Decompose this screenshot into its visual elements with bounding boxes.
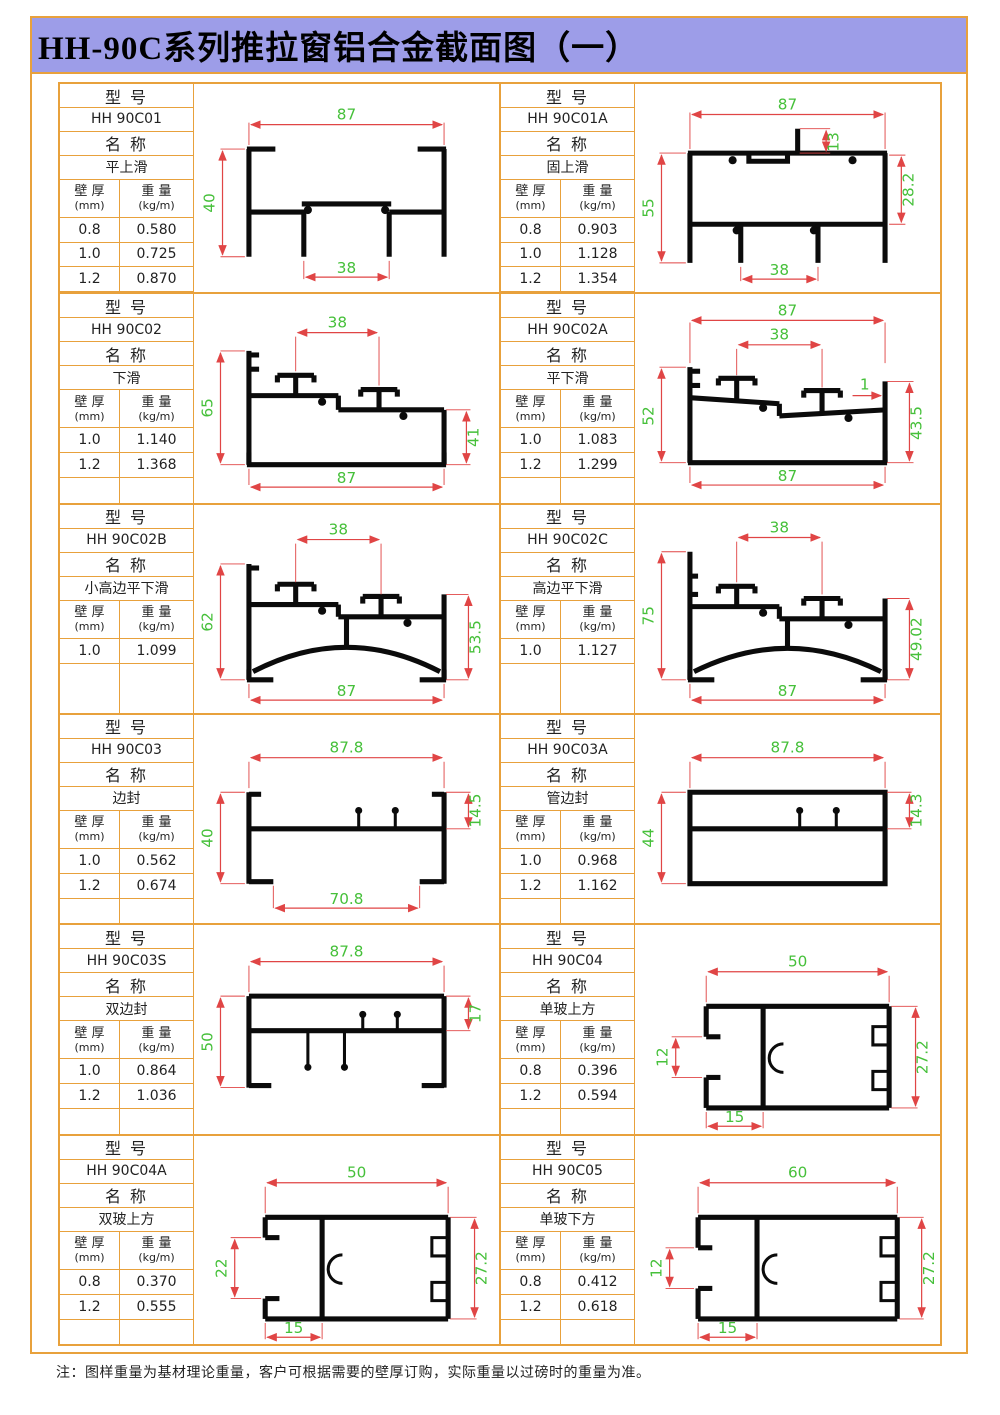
- profile-card-hh90c02b: 型 号 HH 90C02B 名 称 小高边平下滑 壁 厚(mm) 重 量(kg/…: [59, 504, 500, 714]
- table-row: 0.80.412: [501, 1270, 634, 1295]
- svg-text:40: 40: [198, 828, 216, 847]
- profile-card-hh90c03a: 型 号 HH 90C03A 名 称 管边封 壁 厚(mm) 重 量(kg/m) …: [500, 714, 941, 924]
- table-row: 0.80.370: [60, 1270, 193, 1295]
- spec-header: 壁 厚(mm) 重 量(kg/m): [60, 180, 193, 218]
- table-filler: [60, 1320, 193, 1344]
- table-row: 1.01.099: [60, 639, 193, 664]
- svg-text:38: 38: [770, 261, 789, 279]
- table-filler: [60, 478, 193, 502]
- spec-table: 型 号 HH 90C03A 名 称 管边封 壁 厚(mm) 重 量(kg/m) …: [501, 715, 635, 923]
- svg-text:12: 12: [654, 1048, 672, 1067]
- table-row: 1.20.674: [60, 874, 193, 899]
- svg-text:53.5: 53.5: [467, 620, 485, 654]
- table-filler: [501, 899, 634, 923]
- table-filler: [60, 664, 193, 713]
- svg-text:38: 38: [328, 314, 347, 332]
- table-row: 1.20.618: [501, 1295, 634, 1320]
- svg-text:1: 1: [860, 376, 870, 394]
- svg-text:27.2: 27.2: [920, 1251, 938, 1285]
- table-row: 1.21.368: [60, 453, 193, 478]
- section-drawing: 87.8 40 14.5 70.8: [194, 715, 499, 923]
- spec-table: 型 号 HH 90C01A 名 称 固上滑 壁 厚(mm) 重 量(kg/m) …: [501, 84, 635, 292]
- profile-grid: 型 号 HH 90C01 名 称 平上滑 壁 厚(mm) 重 量(kg/m) 0…: [58, 82, 942, 1346]
- dim-bottom-label: 38: [337, 259, 356, 277]
- table-row: 1.01.128: [501, 243, 634, 268]
- svg-text:43.5: 43.5: [908, 406, 926, 440]
- svg-text:17: 17: [467, 1004, 485, 1023]
- svg-text:87: 87: [778, 682, 797, 700]
- table-row: 1.01.140: [60, 428, 193, 453]
- svg-text:55: 55: [639, 198, 657, 217]
- svg-text:14.5: 14.5: [467, 794, 485, 828]
- table-row: 1.20.870: [60, 267, 193, 292]
- table-row: 0.80.580: [60, 218, 193, 243]
- table-row: 1.21.354: [501, 267, 634, 292]
- catalog-page: HH-90C系列推拉窗铝合金截面图（一） 型 号 HH 90C01 名 称 平上…: [0, 0, 1000, 1415]
- table-filler: [501, 1320, 634, 1344]
- section-drawing: 38 65 41 87: [194, 294, 499, 502]
- table-row: 1.21.162: [501, 874, 634, 899]
- spec-table: 型 号 HH 90C02A 名 称 平下滑 壁 厚(mm) 重 量(kg/m) …: [501, 294, 635, 502]
- svg-text:38: 38: [770, 518, 789, 536]
- table-row: 1.01.127: [501, 639, 634, 664]
- section-drawing: 50 12 27.2 15: [635, 925, 940, 1133]
- spec-table: 型 号 HH 90C03S 名 称 双边封 壁 厚(mm) 重 量(kg/m) …: [60, 925, 194, 1133]
- section-drawing: 87.8 50 17: [194, 925, 499, 1133]
- svg-text:15: 15: [725, 1108, 744, 1126]
- spec-table: 型 号 HH 90C03 名 称 边封 壁 厚(mm) 重 量(kg/m) 1.…: [60, 715, 194, 923]
- svg-text:75: 75: [639, 606, 657, 625]
- svg-text:65: 65: [198, 398, 216, 417]
- profile-card-hh90c04a: 型 号 HH 90C04A 名 称 双玻上方 壁 厚(mm) 重 量(kg/m)…: [59, 1135, 500, 1345]
- svg-text:13: 13: [824, 132, 842, 151]
- svg-text:87: 87: [778, 95, 797, 113]
- svg-text:87: 87: [337, 469, 356, 487]
- svg-text:12: 12: [647, 1258, 665, 1277]
- profile-card-hh90c05: 型 号 HH 90C05 名 称 单玻下方 壁 厚(mm) 重 量(kg/m) …: [500, 1135, 941, 1345]
- spec-table: 型 号 HH 90C02B 名 称 小高边平下滑 壁 厚(mm) 重 量(kg/…: [60, 505, 194, 713]
- svg-text:41: 41: [465, 428, 483, 447]
- svg-text:87.8: 87.8: [330, 739, 364, 757]
- profile-card-hh90c02a: 型 号 HH 90C02A 名 称 平下滑 壁 厚(mm) 重 量(kg/m) …: [500, 293, 941, 503]
- table-filler: [60, 899, 193, 923]
- svg-text:87: 87: [337, 682, 356, 700]
- name-value: 平上滑: [60, 156, 193, 180]
- name-label: 名 称: [60, 132, 193, 156]
- spec-table: 型 号 HH 90C04A 名 称 双玻上方 壁 厚(mm) 重 量(kg/m)…: [60, 1136, 194, 1344]
- table-row: 0.80.396: [501, 1059, 634, 1084]
- spec-table: 型 号 HH 90C05 名 称 单玻下方 壁 厚(mm) 重 量(kg/m) …: [501, 1136, 635, 1344]
- svg-text:50: 50: [788, 953, 807, 971]
- svg-text:50: 50: [347, 1163, 366, 1181]
- svg-text:60: 60: [788, 1163, 807, 1181]
- page-title: HH-90C系列推拉窗铝合金截面图（一）: [32, 21, 639, 69]
- svg-text:38: 38: [770, 326, 789, 344]
- table-filler: [60, 1109, 193, 1133]
- table-row: 1.20.555: [60, 1295, 193, 1320]
- section-drawing: 87.8 44 14.3: [635, 715, 940, 923]
- spec-table: 型 号 HH 90C02C 名 称 高边平下滑 壁 厚(mm) 重 量(kg/m…: [501, 505, 635, 713]
- footnote: 注：图样重量为基材理论重量，客户可根据需要的壁厚订购，实际重量以过磅时的重量为准…: [56, 1362, 651, 1382]
- title-bar: HH-90C系列推拉窗铝合金截面图（一）: [32, 18, 966, 74]
- svg-text:87.8: 87.8: [330, 943, 364, 961]
- profile-card-hh90c04: 型 号 HH 90C04 名 称 单玻上方 壁 厚(mm) 重 量(kg/m) …: [500, 924, 941, 1134]
- svg-text:87: 87: [778, 302, 797, 320]
- svg-text:52: 52: [639, 407, 657, 426]
- svg-text:14.3: 14.3: [908, 794, 926, 828]
- svg-text:87: 87: [778, 467, 797, 485]
- svg-text:70.8: 70.8: [330, 890, 364, 908]
- section-drawing: 38 75 49.02 87: [635, 505, 940, 713]
- section-drawing: 60 12 27.2 15: [635, 1136, 940, 1344]
- table-row: 1.00.864: [60, 1059, 193, 1084]
- section-drawing: 87 40 38: [194, 84, 499, 292]
- table-row: 1.00.562: [60, 849, 193, 874]
- model-label: 型 号: [60, 84, 193, 108]
- profile-card-hh90c02: 型 号 HH 90C02 名 称 下滑 壁 厚(mm) 重 量(kg/m) 1.…: [59, 293, 500, 503]
- svg-text:62: 62: [198, 612, 216, 631]
- table-row: 1.21.036: [60, 1084, 193, 1109]
- profile-card-hh90c01a: 型 号 HH 90C01A 名 称 固上滑 壁 厚(mm) 重 量(kg/m) …: [500, 83, 941, 293]
- svg-text:22: 22: [213, 1258, 231, 1277]
- svg-text:27.2: 27.2: [914, 1040, 932, 1074]
- spec-table: 型 号 HH 90C04 名 称 单玻上方 壁 厚(mm) 重 量(kg/m) …: [501, 925, 635, 1133]
- svg-text:38: 38: [329, 520, 348, 538]
- model-value: HH 90C01: [60, 108, 193, 132]
- section-drawing: 87 38 52 1 43.5 87: [635, 294, 940, 502]
- section-drawing: 38 62 53.5 87: [194, 505, 499, 713]
- table-row: 1.20.594: [501, 1084, 634, 1109]
- profile-card-hh90c03s: 型 号 HH 90C03S 名 称 双边封 壁 厚(mm) 重 量(kg/m) …: [59, 924, 500, 1134]
- dim-top-label: 87: [337, 106, 356, 124]
- table-row: 0.80.903: [501, 218, 634, 243]
- table-row: 1.00.968: [501, 849, 634, 874]
- svg-text:15: 15: [284, 1319, 303, 1337]
- dim-left-label: 40: [200, 193, 218, 212]
- table-row: 1.21.299: [501, 453, 634, 478]
- spec-table: 型 号 HH 90C02 名 称 下滑 壁 厚(mm) 重 量(kg/m) 1.…: [60, 294, 194, 502]
- table-filler: [501, 1109, 634, 1133]
- svg-text:49.02: 49.02: [908, 617, 926, 661]
- table-row: 1.01.083: [501, 428, 634, 453]
- svg-text:50: 50: [198, 1032, 216, 1051]
- svg-text:27.2: 27.2: [473, 1251, 491, 1285]
- svg-text:15: 15: [718, 1319, 737, 1337]
- page-frame: HH-90C系列推拉窗铝合金截面图（一） 型 号 HH 90C01 名 称 平上…: [30, 16, 968, 1354]
- spec-table: 型 号 HH 90C01 名 称 平上滑 壁 厚(mm) 重 量(kg/m) 0…: [60, 84, 194, 292]
- section-drawing: 50 22 27.2 15: [194, 1136, 499, 1344]
- section-drawing: 87 13 55 28.2 38: [635, 84, 940, 292]
- table-filler: [501, 664, 634, 713]
- table-row: 1.00.725: [60, 243, 193, 268]
- svg-text:87.8: 87.8: [771, 739, 805, 757]
- table-filler: [501, 478, 634, 502]
- svg-text:44: 44: [639, 828, 657, 847]
- svg-text:28.2: 28.2: [900, 173, 918, 207]
- profile-card-hh90c02c: 型 号 HH 90C02C 名 称 高边平下滑 壁 厚(mm) 重 量(kg/m…: [500, 504, 941, 714]
- profile-card-hh90c01: 型 号 HH 90C01 名 称 平上滑 壁 厚(mm) 重 量(kg/m) 0…: [59, 83, 500, 293]
- profile-card-hh90c03: 型 号 HH 90C03 名 称 边封 壁 厚(mm) 重 量(kg/m) 1.…: [59, 714, 500, 924]
